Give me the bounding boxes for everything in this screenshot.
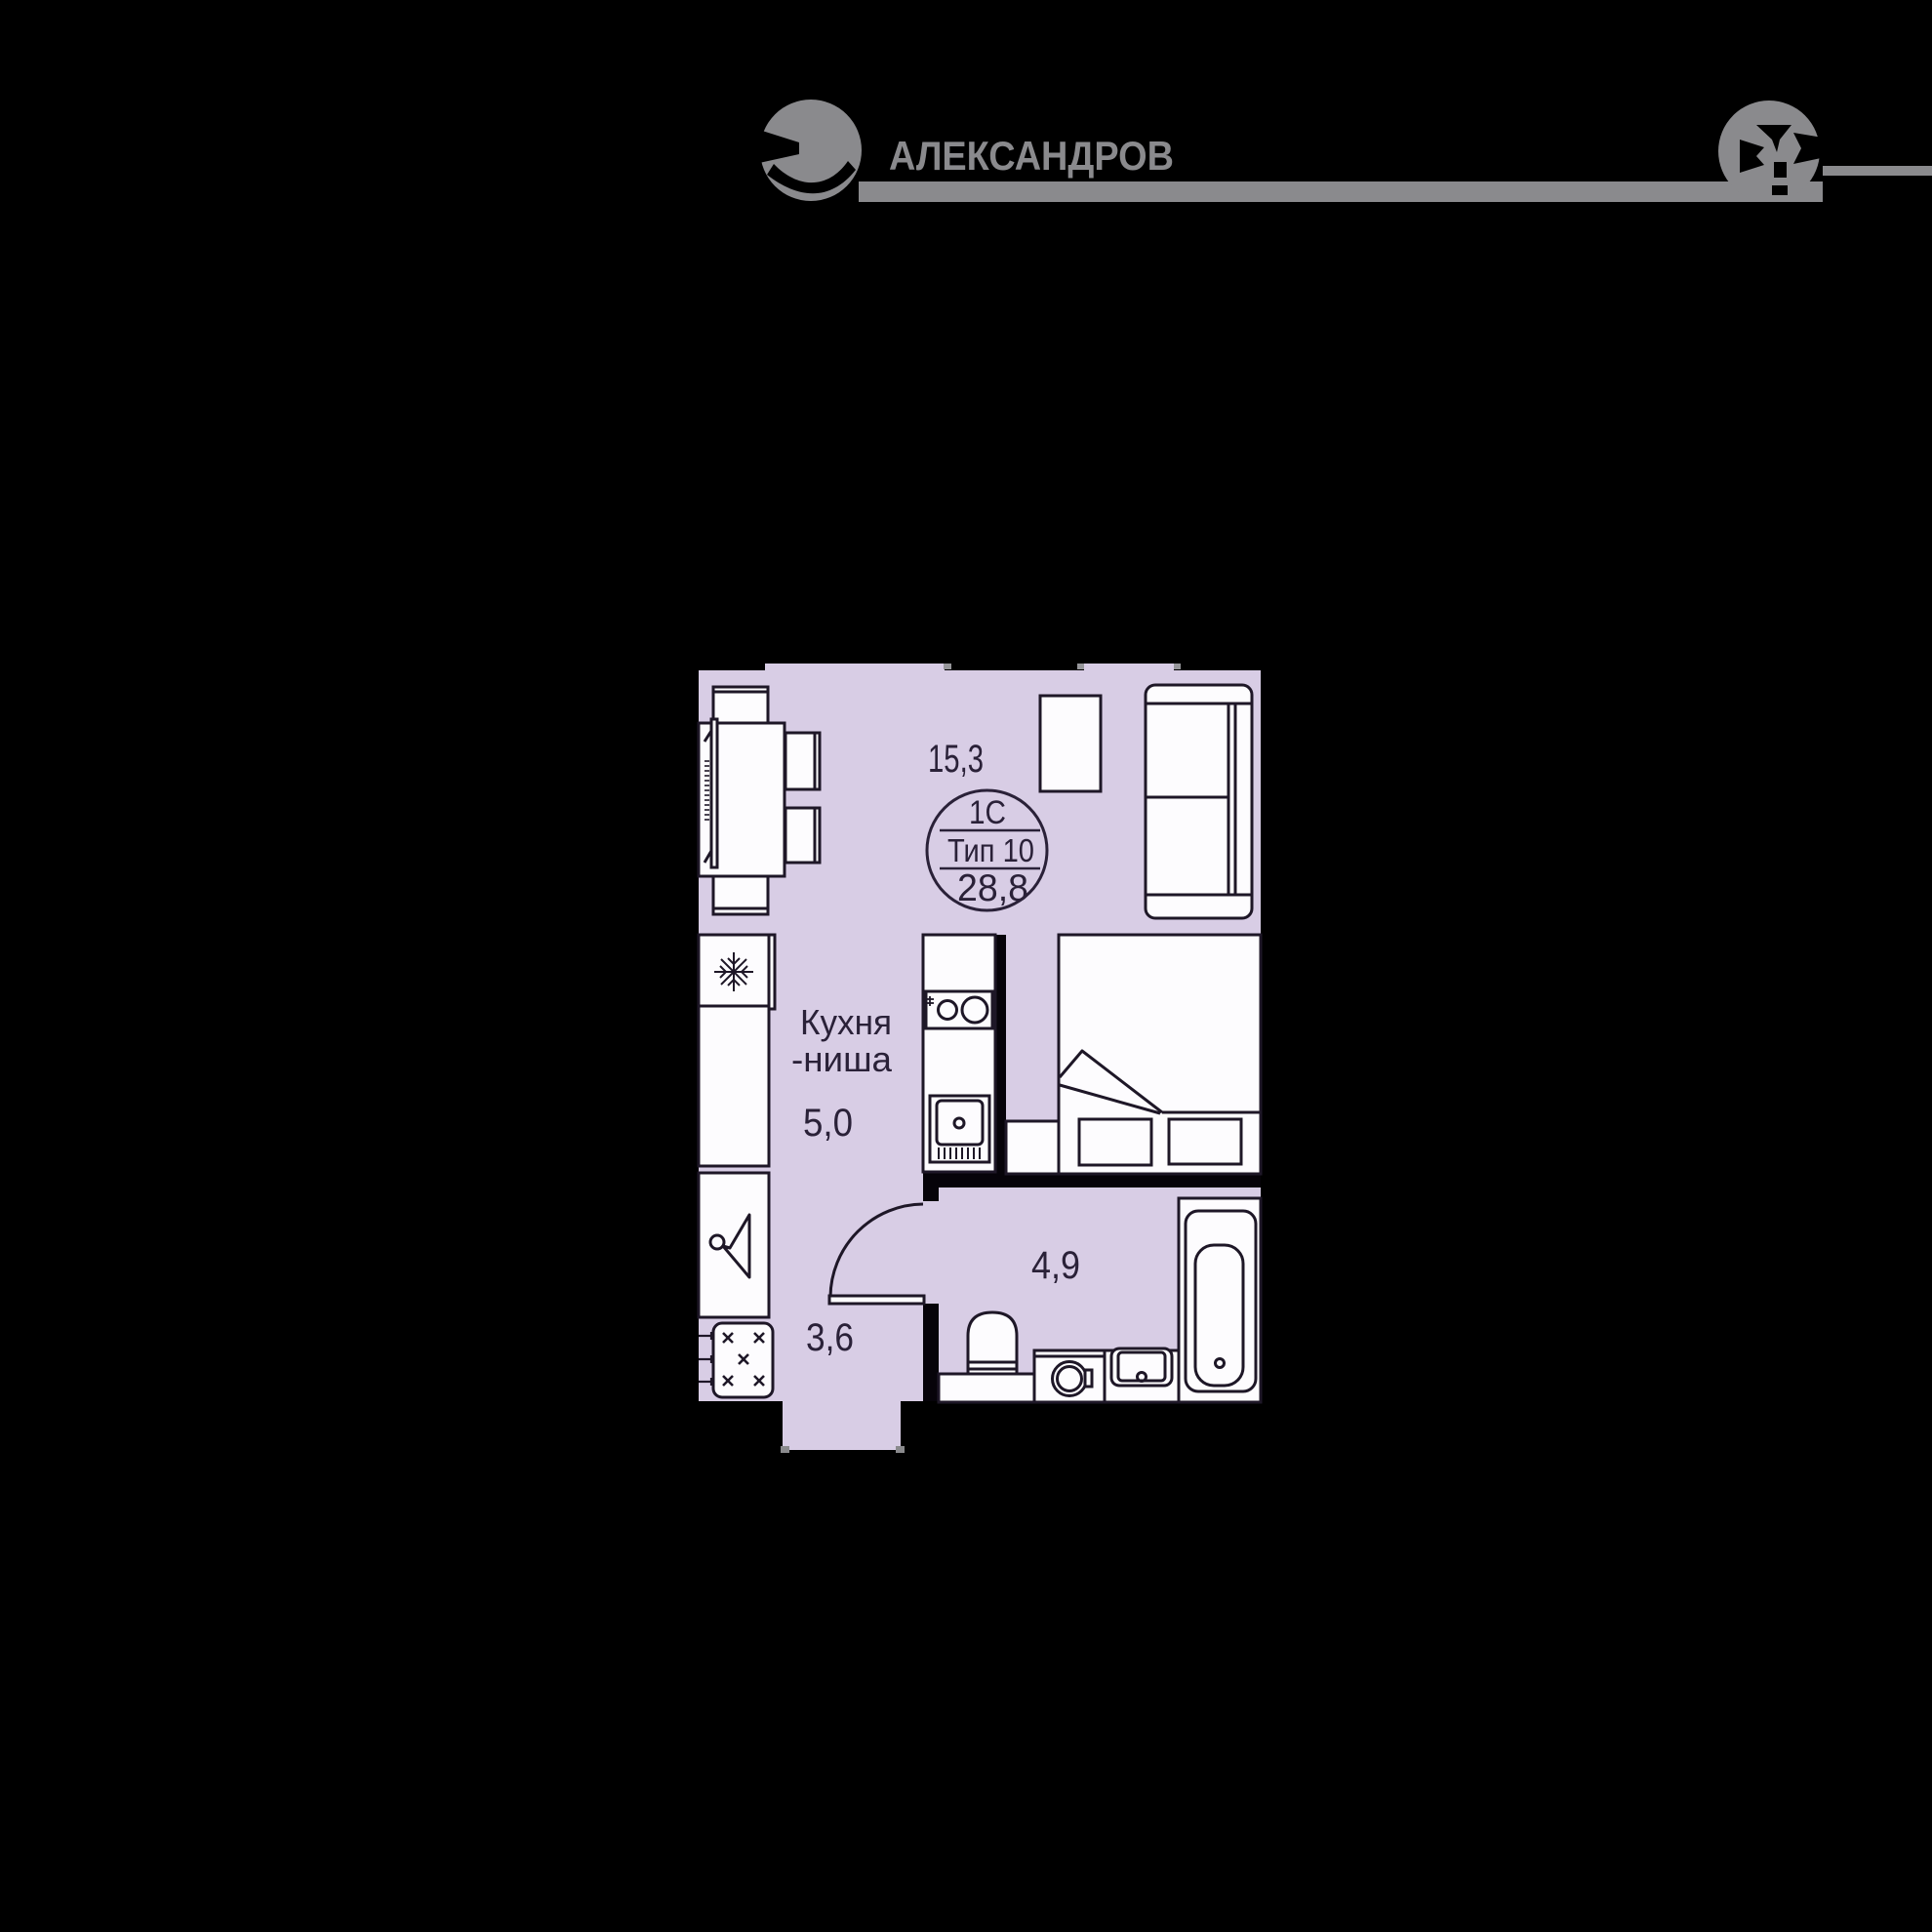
svg-text:Тип 10: Тип 10 <box>947 832 1034 868</box>
svg-text:28,8: 28,8 <box>957 867 1028 909</box>
svg-text:15,3: 15,3 <box>928 738 984 781</box>
svg-text:3,6: 3,6 <box>806 1316 854 1359</box>
svg-text:4,9: 4,9 <box>1031 1244 1080 1287</box>
svg-text:-ниша: -ниша <box>791 1039 893 1079</box>
svg-text:Кухня: Кухня <box>800 1002 892 1042</box>
svg-text:5,0: 5,0 <box>803 1102 853 1145</box>
svg-text:1С: 1С <box>969 794 1006 831</box>
svg-text:АЛЕКСАНДРОВ: АЛЕКСАНДРОВ <box>889 133 1174 179</box>
